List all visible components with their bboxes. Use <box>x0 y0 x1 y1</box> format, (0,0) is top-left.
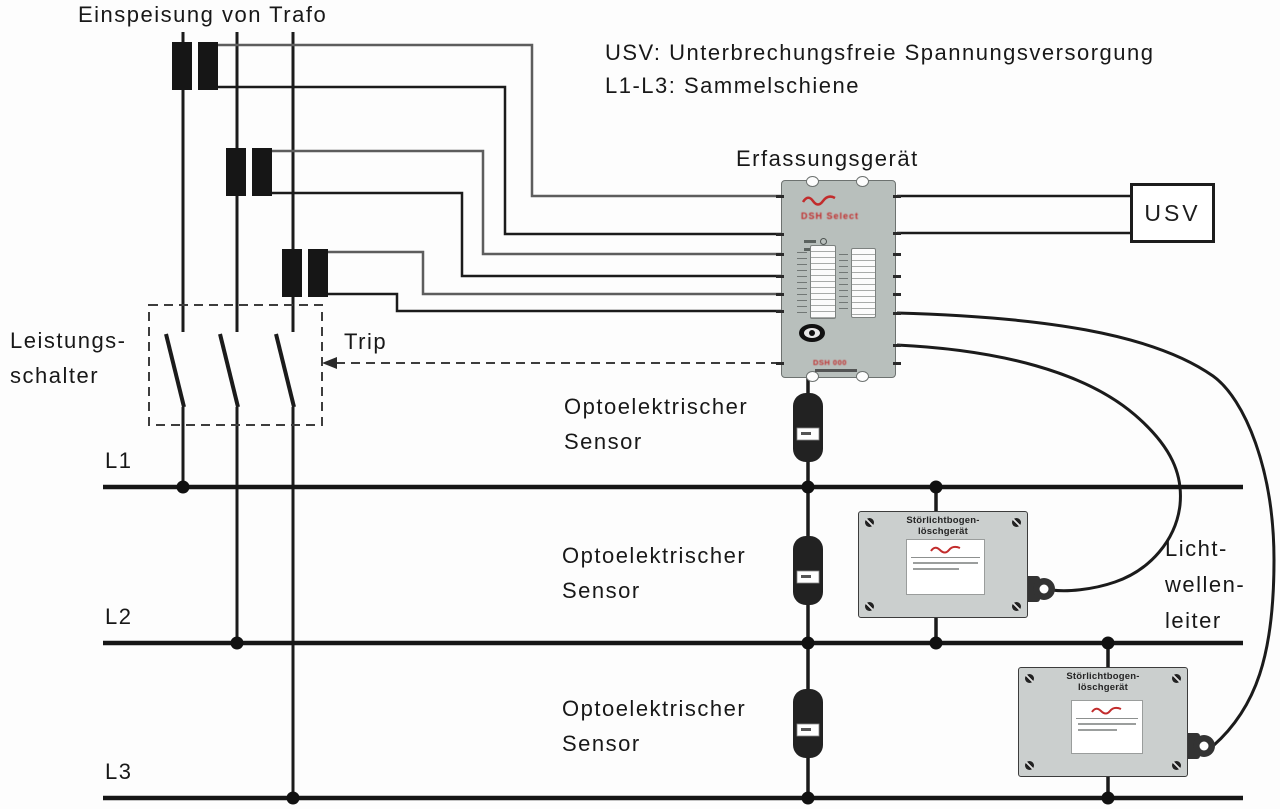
busbar-l3-label: L3 <box>105 761 132 783</box>
optical-eye-icon <box>799 324 825 342</box>
junction-dot <box>1102 792 1115 805</box>
fiber-label: Licht- wellen- leiter <box>1165 538 1245 646</box>
breaker-label: Leistungs- schalter <box>10 330 127 400</box>
sensor-1-label: Optoelektrischer Sensor <box>564 396 748 466</box>
housing-notch <box>806 176 819 187</box>
brand-logo-icon <box>801 193 839 207</box>
legend-usv: USV: Unterbrechungsfreie Spannungsversor… <box>605 42 1154 64</box>
ct-3-right-block <box>308 249 328 297</box>
nameplate-text-smudge <box>913 562 978 564</box>
housing-notch <box>806 371 819 382</box>
terminal-tick <box>893 312 901 315</box>
ct-3-wire-b <box>328 294 782 311</box>
dehn-logo-icon <box>929 544 963 554</box>
quench-device-1: Störlichtbogen- löschgerät <box>858 511 1028 618</box>
quench-2-nameplate <box>1071 700 1143 754</box>
terminal-tick <box>893 362 901 365</box>
sensor-2-label-line1: Optoelektrischer <box>562 545 746 567</box>
screw-icon <box>1012 602 1021 611</box>
terminal-tick <box>893 344 901 347</box>
quench-device-2: Störlichtbogen- löschgerät <box>1018 667 1188 777</box>
led-row <box>804 233 827 237</box>
ct-1-wire-b <box>218 87 782 234</box>
sensor-1-body <box>793 393 823 462</box>
nameplate-text-smudge <box>913 568 959 570</box>
sensor-3-label: Optoelektrischer Sensor <box>562 698 746 768</box>
fiber-label-line3: leiter <box>1165 610 1245 632</box>
sensor-1-label-mark <box>801 432 811 435</box>
sensor-1-label-line1: Optoelektrischer <box>564 396 748 418</box>
junction-dot <box>930 481 943 494</box>
breaker-blade-3 <box>276 334 294 407</box>
pin-labels-left <box>797 252 807 314</box>
ct-2-left-block <box>226 148 246 196</box>
usv-box: USV <box>1130 183 1215 243</box>
quench-1-title-line2: löschgerät <box>918 526 968 537</box>
ct-3-wire-a <box>328 252 782 294</box>
terminal-tick <box>776 233 784 236</box>
busbar-l1-label: L1 <box>105 450 132 472</box>
quench-1-nameplate <box>906 539 985 595</box>
diagram-title: Einspeisung von Trafo <box>78 4 327 26</box>
junction-dot <box>231 637 244 650</box>
ct-2-wire-a <box>272 151 782 254</box>
terminal-tick <box>893 195 901 198</box>
terminal-tick <box>776 253 784 256</box>
terminal-tick <box>893 293 901 296</box>
terminal-block-left <box>810 245 836 319</box>
ct-1-right-block <box>198 42 218 90</box>
sensor-2-label: Optoelektrischer Sensor <box>562 545 746 615</box>
terminal-tick <box>776 293 784 296</box>
nameplate-text-smudge <box>1078 729 1117 731</box>
screw-icon <box>1172 674 1181 683</box>
terminal-block-right <box>851 248 876 318</box>
junction-dot <box>177 481 190 494</box>
detector-label: Erfassungsgerät <box>736 148 919 170</box>
sensor-3-label-mark <box>801 728 811 731</box>
sensor-2-label-mark <box>801 575 811 578</box>
sensor-2-body <box>793 536 823 605</box>
screw-icon <box>865 518 874 527</box>
sensor-3-body <box>793 689 823 758</box>
quench-1-title-line1: Störlichtbogen- <box>906 515 979 526</box>
ct-2-right-block <box>252 148 272 196</box>
fiber-label-line2: wellen- <box>1165 574 1245 596</box>
optical-sensors <box>793 393 823 758</box>
legend: USV: Unterbrechungsfreie Spannungsversor… <box>605 42 1154 108</box>
breaker-blade-1 <box>166 334 184 407</box>
nameplate-text-smudge <box>1078 723 1136 725</box>
terminal-tick <box>776 195 784 198</box>
quench-1-title: Störlichtbogen- löschgerät <box>859 515 1027 537</box>
ct-1-left-block <box>172 42 192 90</box>
legend-busbar: L1-L3: Sammelschiene <box>605 75 1154 97</box>
breaker-label-line2: schalter <box>10 365 127 387</box>
terminal-tick <box>776 310 784 313</box>
detector-model-text: DSH Select <box>801 211 859 221</box>
breaker-label-line1: Leistungs- <box>10 330 127 352</box>
sensor-3-label-line2: Sensor <box>562 733 746 755</box>
quench-2-title-line2: löschgerät <box>1078 682 1128 693</box>
detector-fineprint-smudge <box>815 369 857 372</box>
housing-notch <box>856 176 869 187</box>
dehn-logo-icon <box>1090 705 1124 715</box>
terminal-tick <box>776 275 784 278</box>
junction-dot <box>287 792 300 805</box>
busbar-l2-label: L2 <box>105 606 132 628</box>
junction-dot <box>802 792 815 805</box>
junction-dot <box>1102 637 1115 650</box>
sensor-1-label-line2: Sensor <box>564 431 748 453</box>
sensor-3-label-line1: Optoelektrischer <box>562 698 746 720</box>
screw-icon <box>1025 674 1034 683</box>
trip-label: Trip <box>344 331 387 353</box>
quench-2-lug-hole <box>1200 742 1209 751</box>
quench-2-title: Störlichtbogen- löschgerät <box>1019 671 1187 693</box>
housing-notch <box>856 371 869 382</box>
screw-icon <box>865 602 874 611</box>
screw-icon <box>1025 761 1034 770</box>
quench-1-lug-hole <box>1040 585 1049 594</box>
junction-dot <box>802 637 815 650</box>
junction-dot <box>802 481 815 494</box>
terminal-tick <box>893 253 901 256</box>
usv-label: USV <box>1144 200 1200 227</box>
screw-icon <box>1012 518 1021 527</box>
nameplate-divider <box>911 557 980 558</box>
terminal-tick <box>893 232 901 235</box>
detector-bottom-text: DSH 000 <box>813 358 847 367</box>
detector-device: DSH Select DSH 000 <box>781 180 896 378</box>
nameplate-divider <box>1076 718 1138 719</box>
pin-labels-right <box>839 254 848 312</box>
breaker-blade-2 <box>220 334 238 407</box>
screw-icon <box>1172 761 1181 770</box>
terminal-tick <box>893 275 901 278</box>
quench-2-title-line1: Störlichtbogen- <box>1066 671 1139 682</box>
ct-3-left-block <box>282 249 302 297</box>
junction-dot <box>930 637 943 650</box>
diagram-canvas: Einspeisung von Trafo USV: Unterbrechung… <box>0 0 1280 809</box>
terminal-tick <box>776 362 784 365</box>
fiber-label-line1: Licht- <box>1165 538 1245 560</box>
trip-arrow-icon <box>322 357 337 369</box>
sensor-2-label-line2: Sensor <box>562 580 746 602</box>
